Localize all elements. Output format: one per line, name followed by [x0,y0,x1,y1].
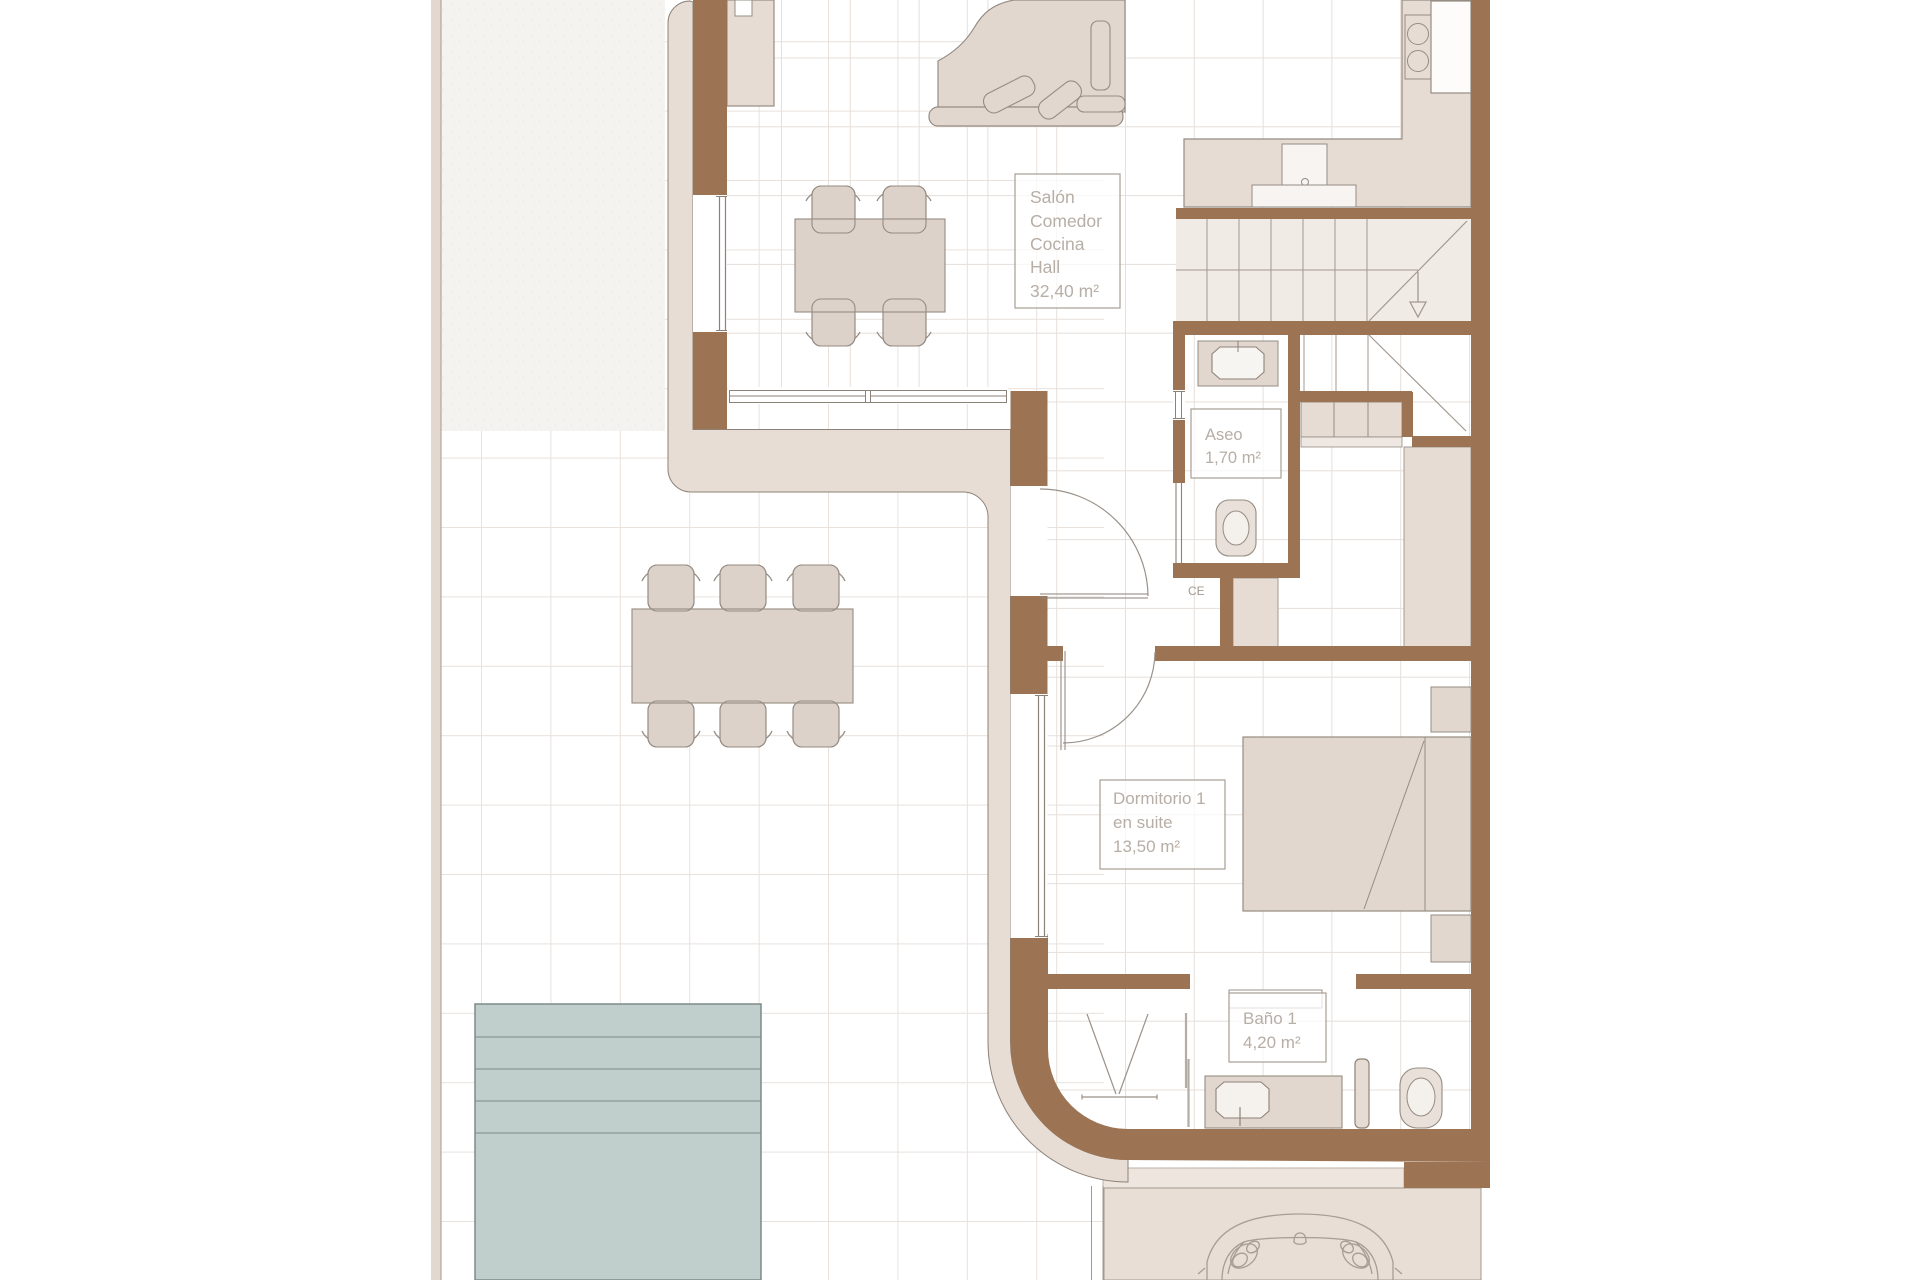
svg-text:Salón: Salón [1030,187,1075,207]
svg-text:CE: CE [1188,584,1205,598]
svg-text:Comedor: Comedor [1030,211,1102,231]
svg-text:Aseo: Aseo [1205,426,1243,444]
svg-text:Dormitorio 1: Dormitorio 1 [1113,789,1206,808]
svg-text:Cocina: Cocina [1030,234,1085,254]
svg-text:32,40 m²: 32,40 m² [1030,281,1099,301]
svg-text:en suite: en suite [1113,813,1173,832]
svg-text:1,70 m²: 1,70 m² [1205,449,1261,467]
svg-text:Baño 1: Baño 1 [1243,1009,1297,1028]
svg-text:13,50 m²: 13,50 m² [1113,837,1180,856]
svg-text:Hall: Hall [1030,257,1060,277]
svg-text:4,20 m²: 4,20 m² [1243,1033,1301,1052]
